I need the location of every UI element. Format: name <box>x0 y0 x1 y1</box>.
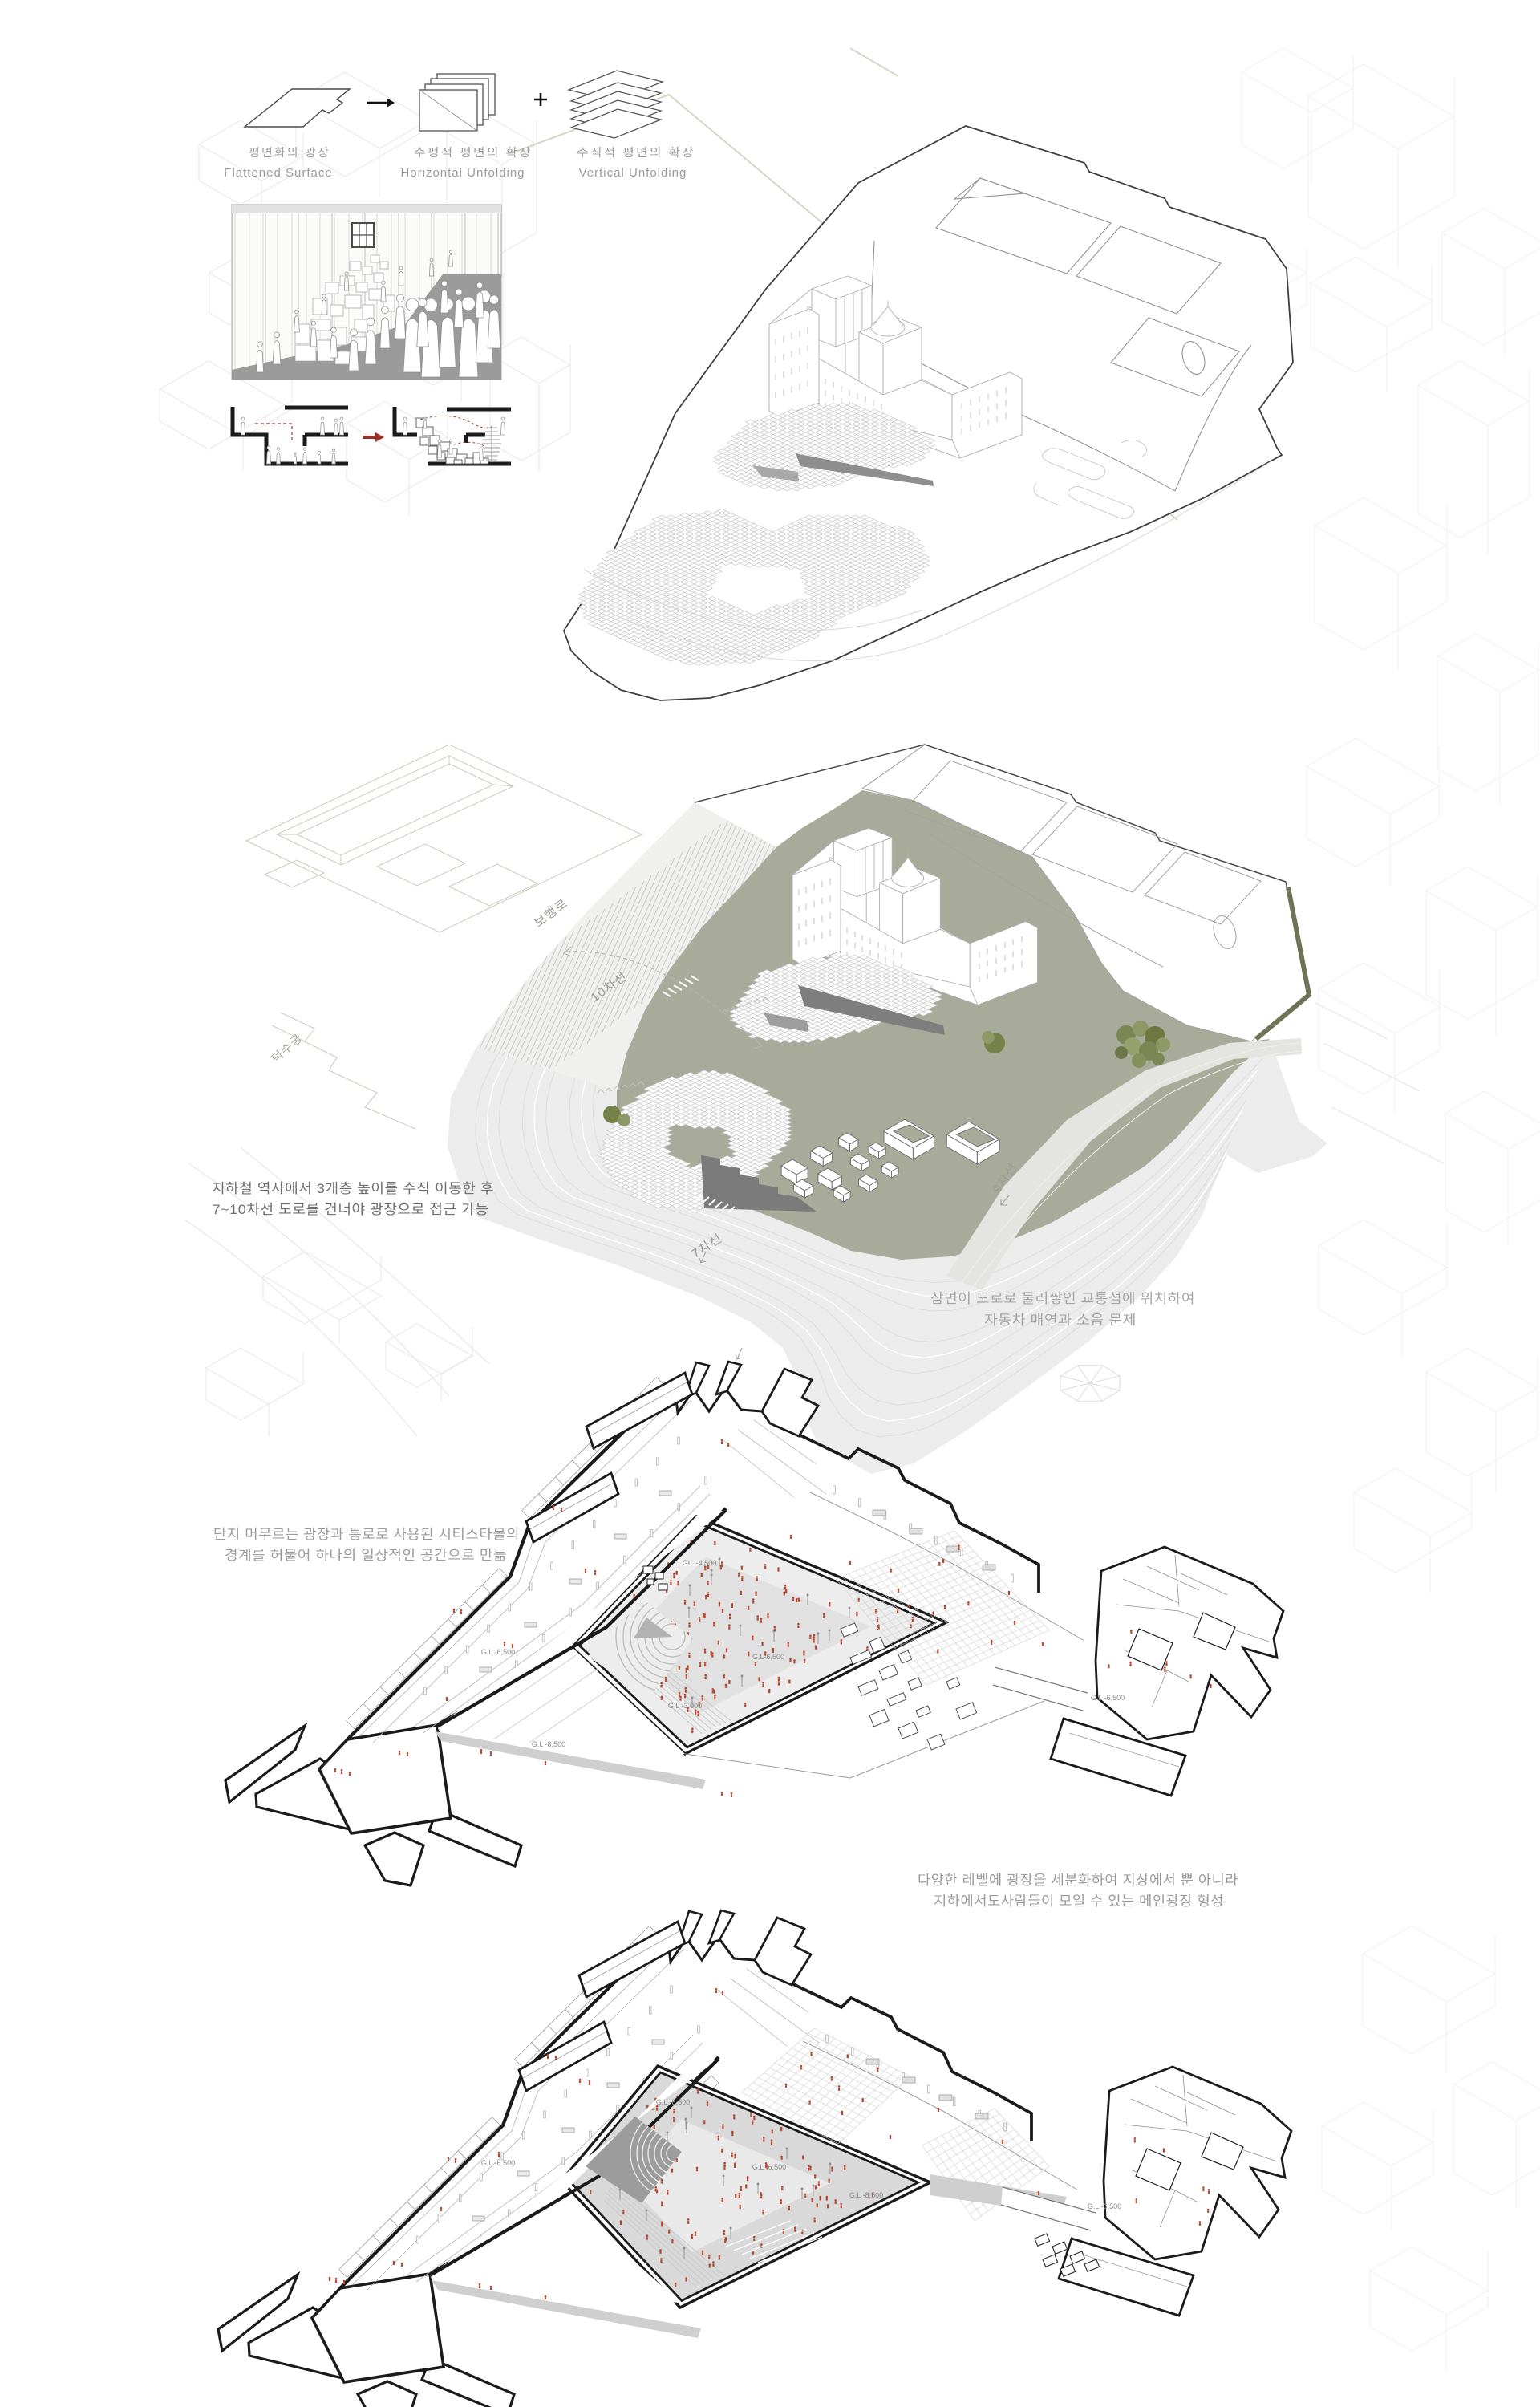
svg-text:G.L-6,500: G.L-6,500 <box>752 1653 784 1661</box>
svg-text:다양한 레벨에 광장을 세분화하여 지상에서 뿐 아니라: 다양한 레벨에 광장을 세분화하여 지상에서 뿐 아니라 <box>918 1873 1238 1888</box>
svg-text:Horizontal Unfolding: Horizontal Unfolding <box>400 166 525 180</box>
svg-text:삼면이 도로로 둘러쌓인 교통섬에 위치하여: 삼면이 도로로 둘러쌓인 교통섬에 위치하여 <box>930 1291 1195 1306</box>
svg-text:Vertical Unfolding: Vertical Unfolding <box>579 166 687 180</box>
svg-text:G.L -6,500: G.L -6,500 <box>752 2163 786 2171</box>
svg-text:수평적 평면의 확장: 수평적 평면의 확장 <box>414 146 533 159</box>
svg-text:G.L -8,500: G.L -8,500 <box>656 2098 690 2106</box>
svg-text:자동차 매연과 소음 문제: 자동차 매연과 소음 문제 <box>984 1313 1137 1328</box>
svg-text:7~10차선 도로를 건너야 광장으로 접근 가능: 7~10차선 도로를 건너야 광장으로 접근 가능 <box>213 1202 489 1217</box>
svg-text:지하에서도사람들이 모일 수 있는 메인광장 형성: 지하에서도사람들이 모일 수 있는 메인광장 형성 <box>934 1894 1224 1909</box>
svg-text:G.L -6,500: G.L -6,500 <box>481 1648 515 1656</box>
svg-text:G.L -6,500: G.L -6,500 <box>481 2159 515 2167</box>
svg-text:지하철 역사에서 3개층 높이를 수직 이동한 후: 지하철 역사에서 3개층 높이를 수직 이동한 후 <box>212 1181 494 1196</box>
svg-text:단지 머무르는 광장과 통로로 사용된 시티스타몰의: 단지 머무르는 광장과 통로로 사용된 시티스타몰의 <box>213 1527 520 1542</box>
svg-text:G.L -6,500: G.L -6,500 <box>1088 2202 1121 2210</box>
svg-text:G.L -6,500: G.L -6,500 <box>1091 1694 1125 1702</box>
svg-text:G.L -8,500: G.L -8,500 <box>532 1740 565 1748</box>
svg-text:경계를 허물어 하나의 일상적인 공간으로 만듦: 경계를 허물어 하나의 일상적인 공간으로 만듦 <box>225 1548 507 1563</box>
svg-text:Flattened Surface: Flattened Surface <box>224 166 332 180</box>
svg-text:평면화의 광장: 평면화의 광장 <box>249 146 330 159</box>
svg-text:GL. -4,500: GL. -4,500 <box>683 1559 717 1567</box>
svg-text:G.L -3,000: G.L -3,000 <box>668 1702 702 1710</box>
svg-text:G.L -8,500: G.L -8,500 <box>849 2191 883 2199</box>
svg-text:수직적 평면의 확장: 수직적 평면의 확장 <box>577 146 695 159</box>
